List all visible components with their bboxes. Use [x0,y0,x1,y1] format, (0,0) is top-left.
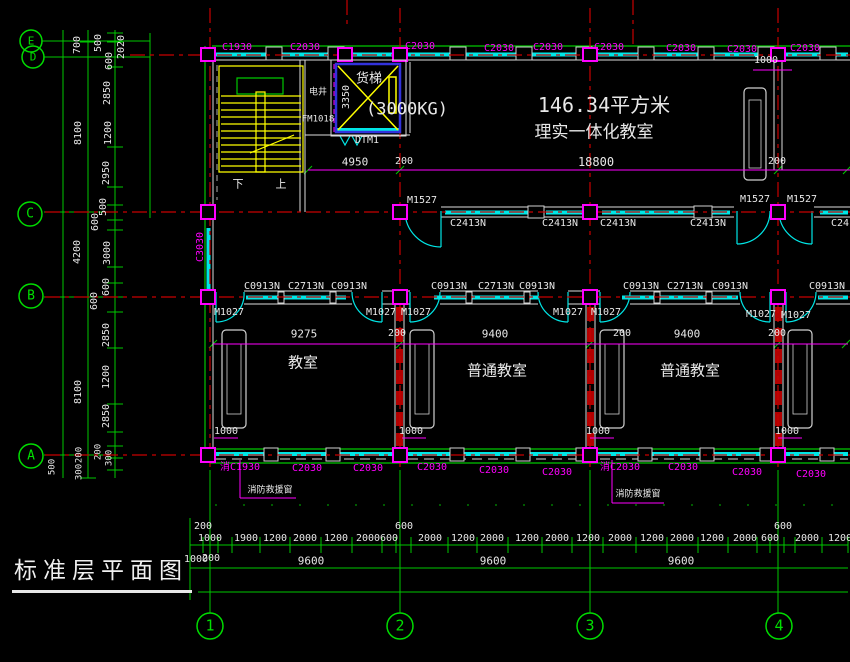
dim-bottom: 1200 [324,534,348,544]
door-label: FM1018 [302,116,335,125]
room-label-shaft: 电井 [309,89,327,98]
door-label: M1527 [787,195,817,205]
dim-left: 1200 [102,365,112,389]
dim-bottom: 1900 [234,534,258,544]
fire-window-callout: 消防救援窗 [247,487,292,496]
room-label: 教室 [288,356,318,371]
window-label: C0913N [331,282,367,292]
window-label-bottom: C2030 [732,468,762,478]
cad-floor-plan: 7005006002020285081001200295050060042003… [0,0,850,662]
window-label: C2413N [831,219,850,229]
window-label: C2713N [478,282,514,292]
dim-left: 300 [106,450,115,466]
window-label: C0913N [623,282,659,292]
dim-left: 2950 [102,161,112,185]
window-label: C2413N [542,219,578,229]
grid-letter-B: B [27,290,35,303]
dim-plan: 9400 [482,329,509,340]
dim-plan: 1000 [399,427,423,437]
window-label-top: C2030 [594,43,624,53]
dim-bottom: 1200 [576,534,600,544]
door-label: M1027 [781,311,811,321]
stair-up-label: 上 [276,179,287,190]
dim-left: 500 [49,459,58,475]
dim-left: 2850 [102,323,112,347]
dim-bottom: 9600 [668,556,695,567]
dim-bottom: 600 [774,522,792,532]
dim-bottom: 1200 [451,534,475,544]
dim-left: 2020 [117,35,127,59]
dim-left: 300 [76,464,85,480]
dim-plan: 1000 [214,427,238,437]
window-label-bottom: C2030 [353,464,383,474]
door-label: M1027 [214,308,244,318]
elevator-tag: DTM1 [355,136,379,146]
room-label-elevator: 货梯 [356,73,382,86]
dim-bottom: 1200 [700,534,724,544]
grid-letter-E: E [28,36,35,47]
dim-bottom: 200 [194,522,212,532]
dim-left: 600 [105,52,115,70]
dim-left: 4200 [73,240,83,264]
window-label-bottom: C2030 [542,468,572,478]
window-label-top: C2030 [484,44,514,54]
window-label-top: C1930 [222,43,252,53]
dim-bottom: 600 [761,534,779,544]
dim-bottom: 2000 [670,534,694,544]
grid-letter-C: C [26,208,34,221]
dim-bottom: 2000 [356,534,380,544]
door-label: M1527 [740,195,770,205]
dim-left: 2850 [103,81,113,105]
grid-letter-A: A [27,450,35,463]
window-label: C0913N [519,282,555,292]
dim-plan: 200 [395,157,413,167]
window-label: C2413N [690,219,726,229]
dim-bottom: 9600 [298,556,325,567]
door-label: M1527 [407,196,437,206]
dim-left: 8100 [74,380,84,404]
door-label: M1027 [553,308,583,318]
dim-plan: 1000 [586,427,610,437]
dim-left: 1200 [104,121,114,145]
window-label: C2413N [450,219,486,229]
window-label-top: C2030 [290,43,320,53]
dim-plan: 9275 [291,329,318,340]
dim-bottom: 2000 [480,534,504,544]
dim-plan: 200 [613,329,631,339]
dim-plan: 3350 [342,85,352,109]
elevator-capacity: (3000KG) [366,102,448,119]
window-label: C2713N [667,282,703,292]
room-label: 理实一体化教室 [535,125,654,142]
dim-plan: 1000 [775,427,799,437]
dim-left: 2850 [102,404,112,428]
dim-bottom: 1000 [198,534,222,544]
dim-plan: 18800 [578,156,614,168]
window-label-bottom: C2030 [479,466,509,476]
dim-bottom: 1200 [515,534,539,544]
window-label: C2413N [600,219,636,229]
grid-number-1: 1 [205,619,214,634]
window-label-bottom: 消C1930 [220,463,260,473]
window-label: C3030 [196,232,206,262]
dim-bottom: 600 [395,522,413,532]
window-label: C0913N [712,282,748,292]
grid-letter-D: D [30,52,37,63]
dim-plan: 200 [768,329,786,339]
dim-bottom: 9600 [480,556,507,567]
dim-left: 200 [95,444,104,460]
dim-bottom: 200 [202,554,220,564]
window-label-bottom: C2030 [292,464,322,474]
dim-left: 700 [73,36,83,54]
dim-left: 500 [94,34,104,52]
dim-plan: 4950 [342,157,369,168]
dim-bottom: 1200 [828,534,850,544]
window-label-bottom: 消C2030 [600,463,640,473]
dim-bottom: 1200 [263,534,287,544]
window-label-bottom: C2030 [796,470,826,480]
window-label-top: C2030 [727,45,757,55]
room-label: 普通教室 [467,364,527,379]
door-label: M1027 [366,308,396,318]
dim-left: 3000 [103,241,113,265]
window-label-top: C2030 [666,44,696,54]
dim-bottom: 2000 [733,534,757,544]
window-label-bottom: C2030 [668,463,698,473]
window-label-bottom: C2030 [417,463,447,473]
dim-plan: 9400 [674,329,701,340]
dim-left: 600 [90,292,100,310]
fire-window-callout: 消防救援窗 [615,491,660,500]
dim-bottom: 2000 [795,534,819,544]
door-label: M1027 [746,310,776,320]
grid-number-3: 3 [585,619,594,634]
window-label-top: C2030 [405,42,435,52]
room-area-label: 146.34平方米 [538,95,670,115]
dim-plan: 1000 [754,56,778,66]
room-label: 普通教室 [660,364,720,379]
drawing-title: 标准层平面图 [12,551,192,593]
window-label-top: C2030 [790,44,820,54]
window-label: C0913N [244,282,280,292]
stair-down-label: 下 [233,179,244,190]
dim-left: 600 [91,213,101,231]
window-label-top: C2030 [533,43,563,53]
dim-bottom: 600 [380,534,398,544]
grid-number-2: 2 [395,619,404,634]
dim-bottom: 2000 [608,534,632,544]
window-label: C0913N [431,282,467,292]
grid-number-4: 4 [774,619,783,634]
dim-plan: 200 [768,157,786,167]
dim-bottom: 1200 [640,534,664,544]
door-label: M1027 [591,308,621,318]
dim-left: 200 [76,447,85,463]
dim-left: 8100 [74,121,84,145]
dim-left: 600 [102,278,112,296]
window-label: C2713N [288,282,324,292]
dim-bottom: 2000 [418,534,442,544]
window-label: C0913N [809,282,845,292]
dim-bottom: 2000 [293,534,317,544]
dim-bottom: 2000 [545,534,569,544]
door-label: M1027 [401,308,431,318]
dim-plan: 200 [388,329,406,339]
